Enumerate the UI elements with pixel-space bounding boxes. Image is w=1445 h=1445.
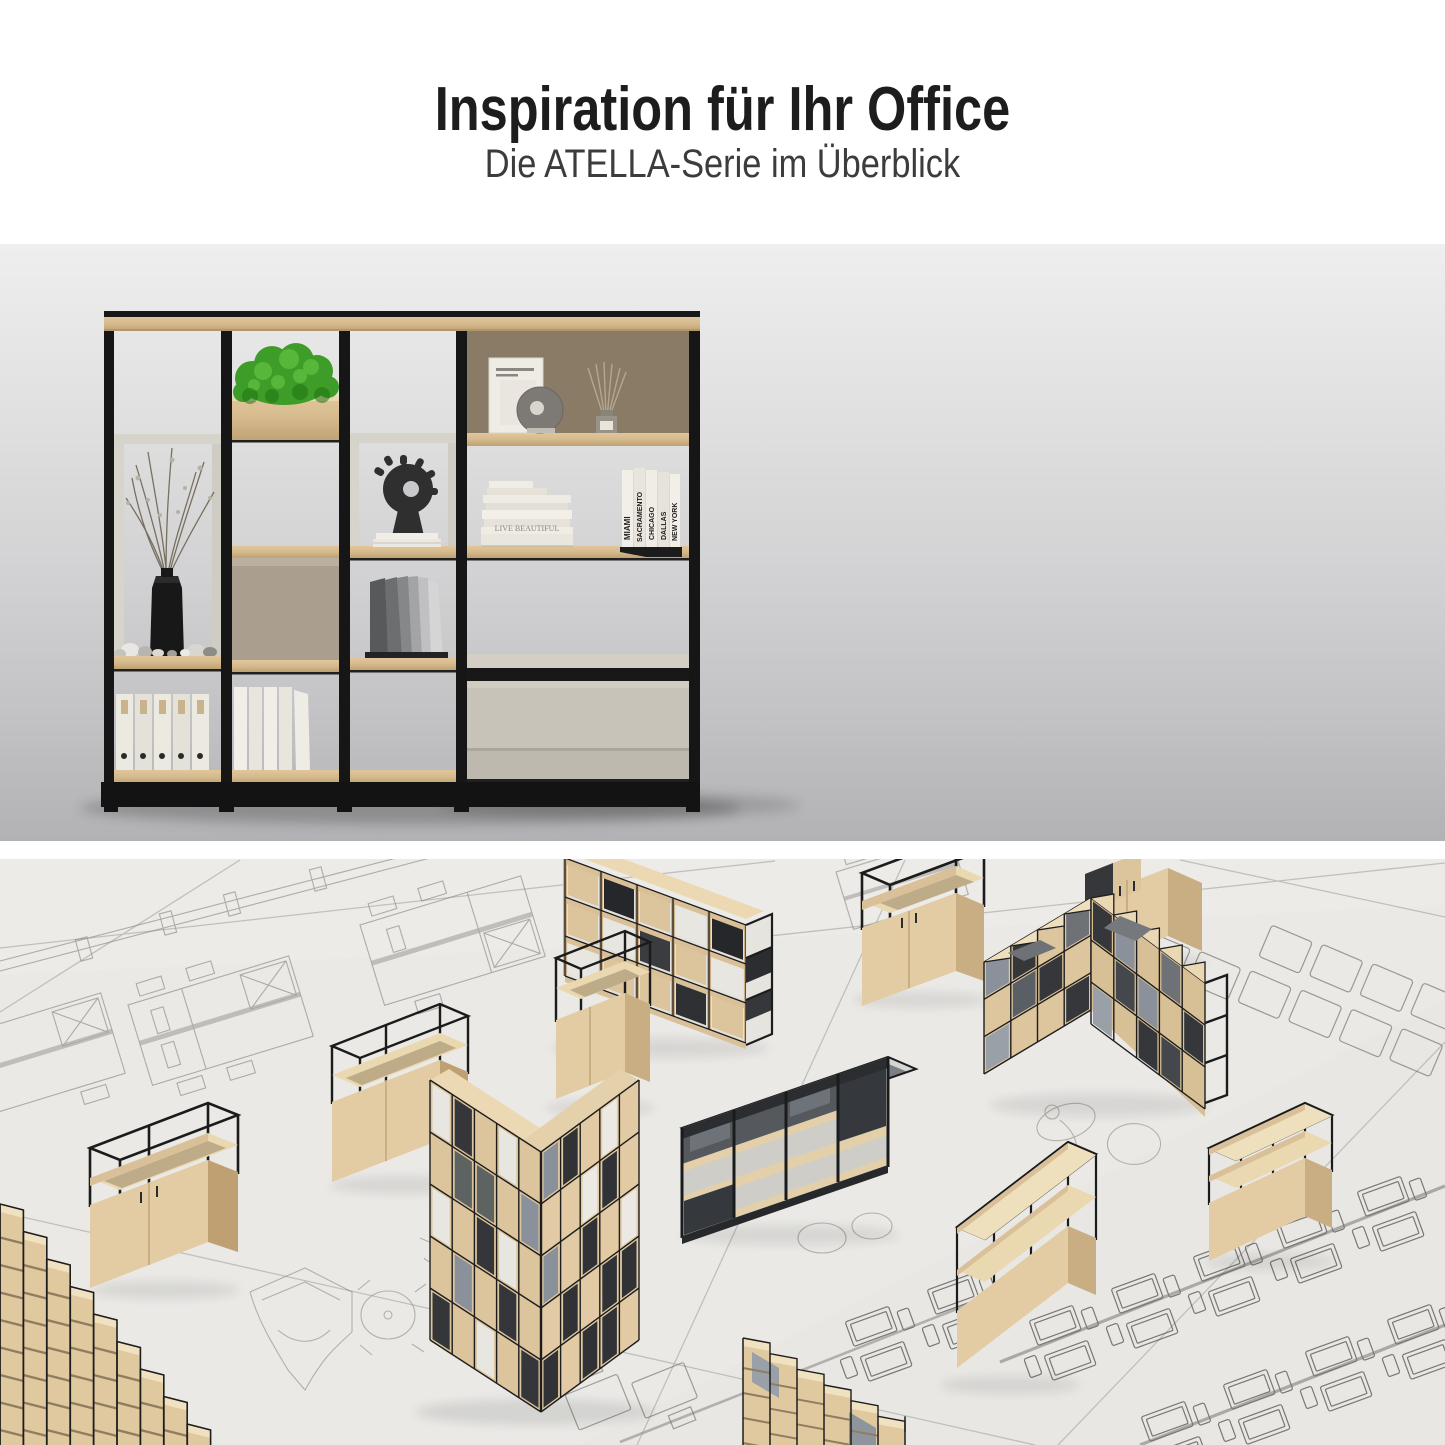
svg-text:SACRAMENTO: SACRAMENTO: [637, 491, 644, 542]
svg-text:NEW YORK: NEW YORK: [672, 503, 679, 541]
svg-text:DALLAS: DALLAS: [661, 511, 668, 540]
svg-text:MIAMI: MIAMI: [623, 516, 632, 540]
svg-text:CHICAGO: CHICAGO: [649, 506, 656, 540]
svg-text:LIVE BEAUTIFUL: LIVE BEAUTIFUL: [495, 524, 560, 533]
